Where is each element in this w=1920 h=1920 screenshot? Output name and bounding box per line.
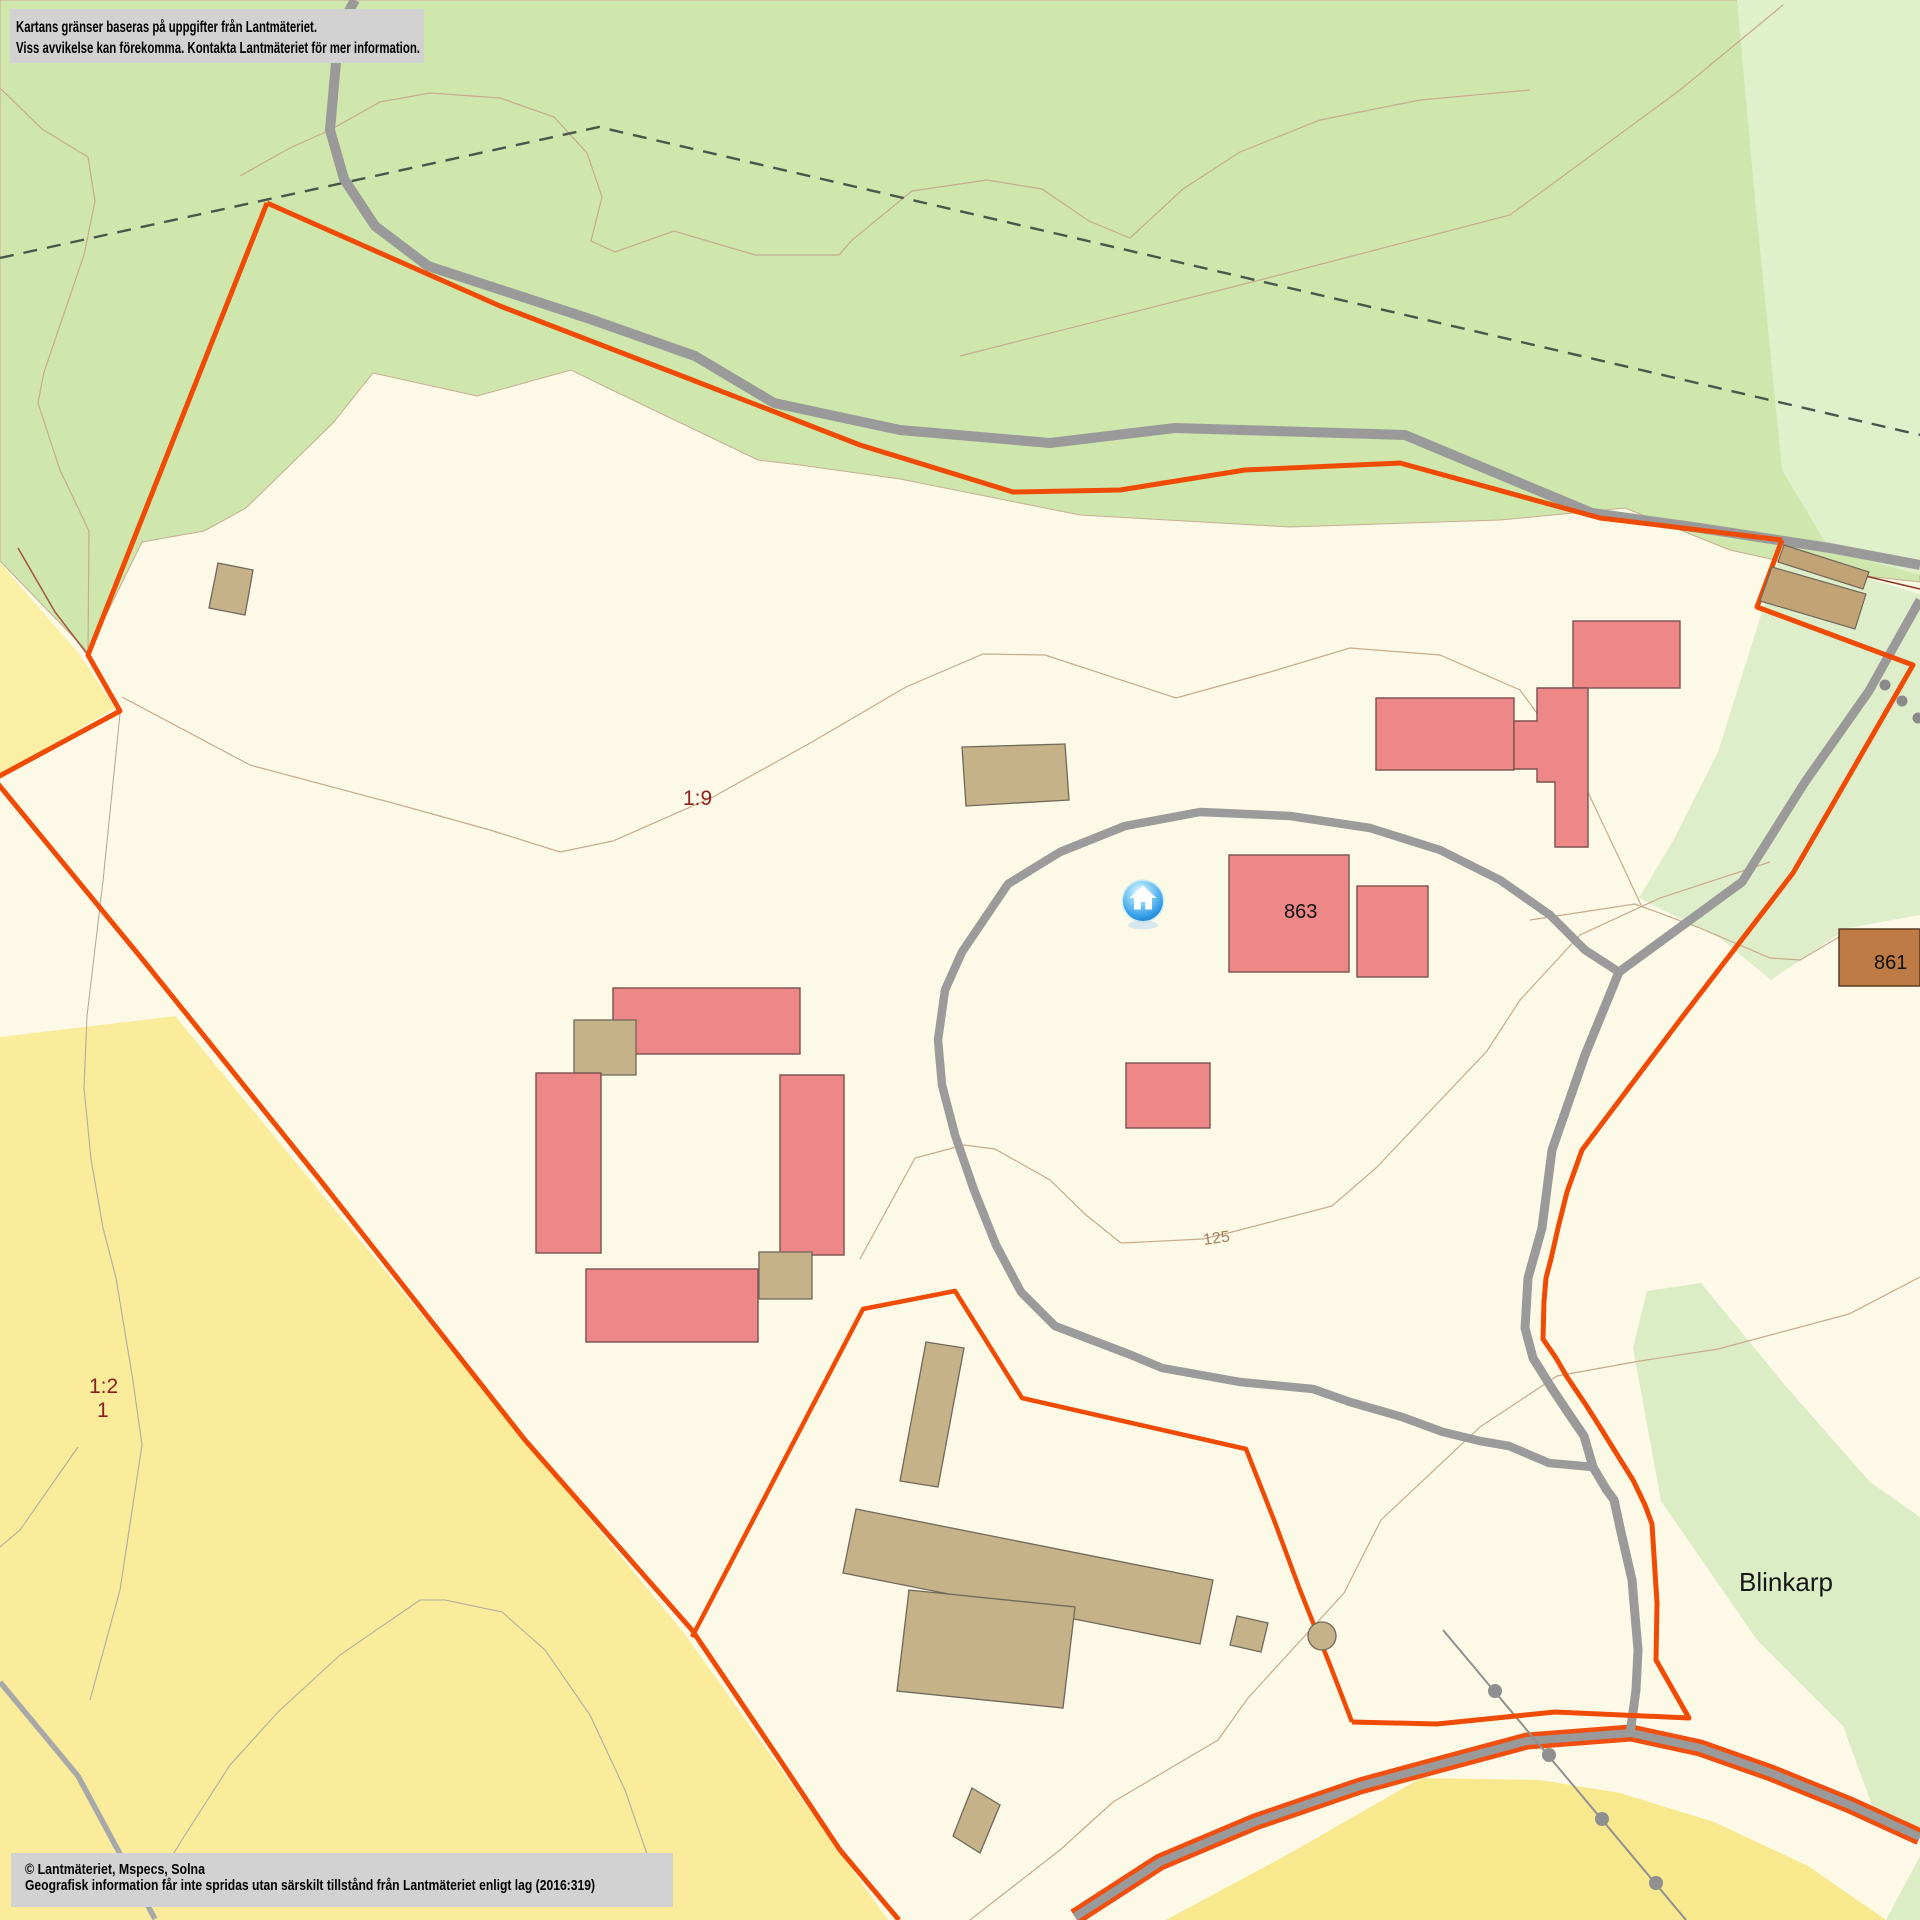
svg-text:1:9: 1:9: [683, 787, 712, 810]
svg-text:Viss avvikelse kan förekomma.: Viss avvikelse kan förekomma. Kontakta L…: [16, 40, 420, 57]
svg-text:© Lantmäteriet, Mspecs, Solna: © Lantmäteriet, Mspecs, Solna: [25, 1861, 206, 1878]
svg-text:Geografisk information får int: Geografisk information får inte spridas …: [25, 1877, 595, 1894]
svg-text:863: 863: [1284, 901, 1317, 923]
svg-text:1: 1: [97, 1399, 109, 1422]
svg-text:Blinkarp: Blinkarp: [1739, 1567, 1833, 1597]
svg-text:1:2: 1:2: [89, 1375, 118, 1398]
svg-text:Kartans gränser baseras på upp: Kartans gränser baseras på uppgifter frå…: [16, 19, 317, 36]
svg-text:861: 861: [1874, 952, 1907, 974]
